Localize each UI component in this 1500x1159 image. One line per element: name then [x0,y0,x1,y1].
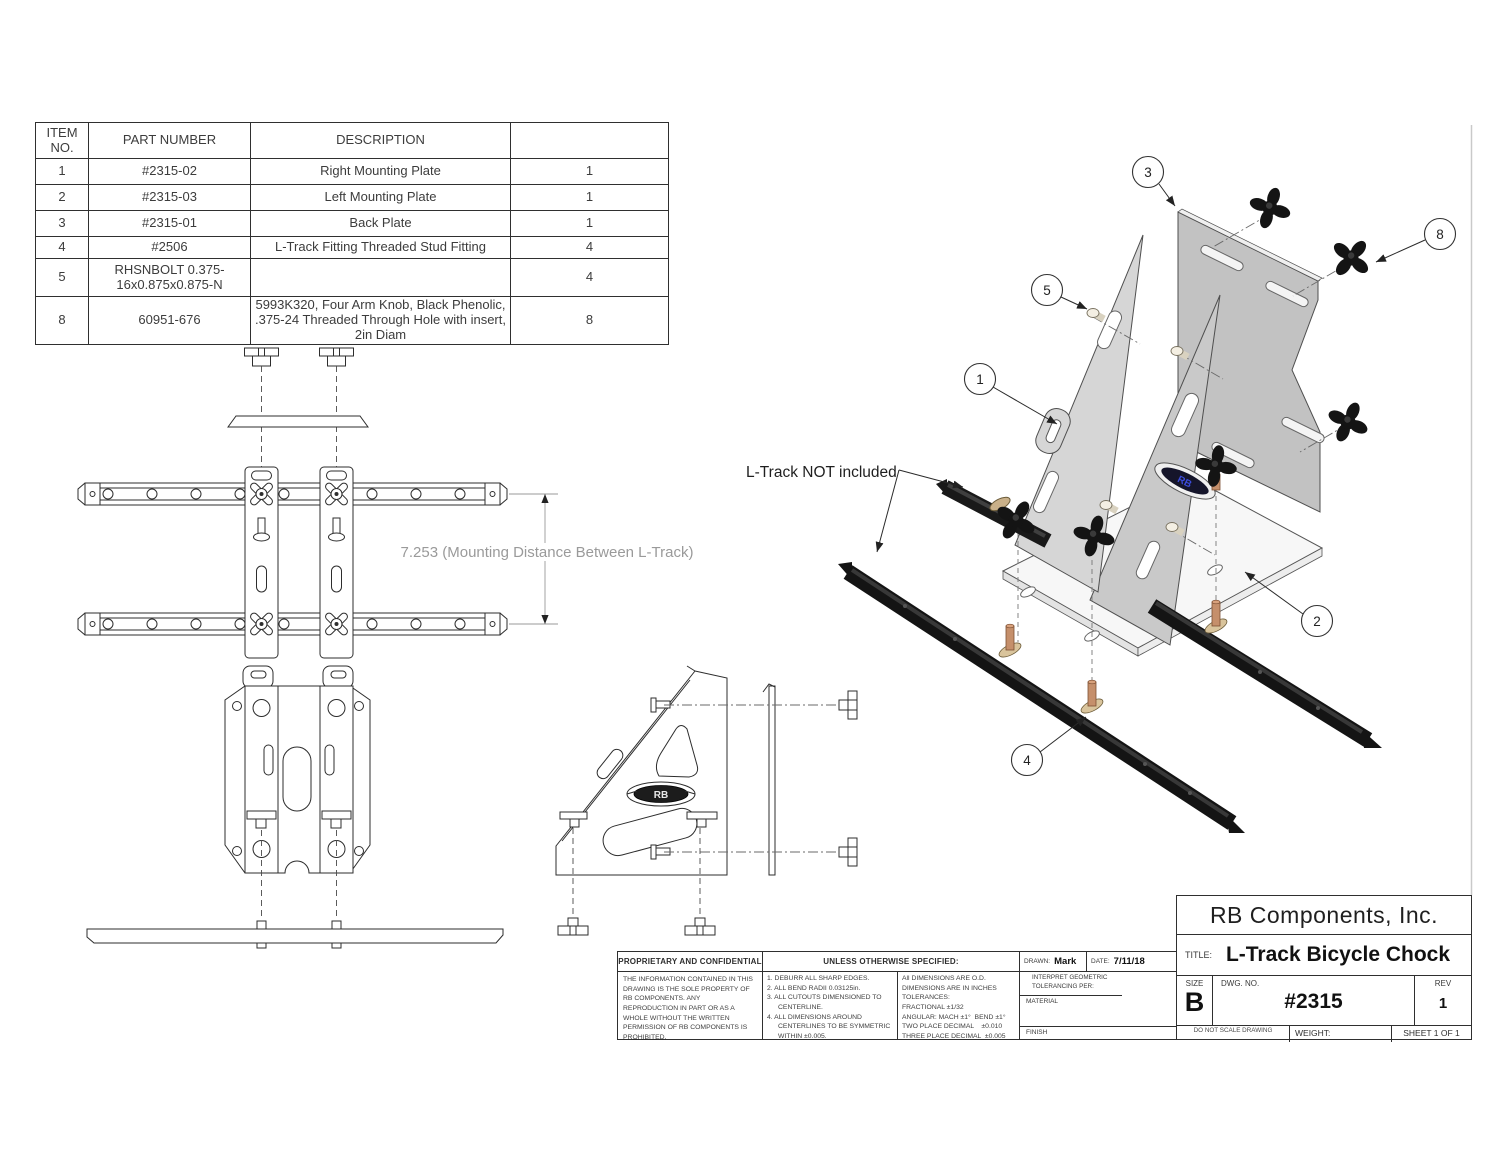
table-header-row: ITEM NO. PART NUMBER DESCRIPTION [36,123,669,159]
ltrack-right [1152,600,1382,748]
tolerance-line: THREE PLACE DECIMAL ±0.005 [902,1032,1015,1042]
unless-title: UNLESS OTHERWISE SPECIFIED: [763,952,1019,972]
cell-desc [251,259,511,297]
drawing-title: L-Track Bicycle Chock [1177,935,1471,975]
cell-part: #2315-02 [89,159,251,185]
finish-label: FINISH [1020,1027,1176,1046]
four-arm-knob [1320,394,1376,450]
rb-logo: RB [627,782,695,806]
cell-desc: Right Mounting Plate [251,159,511,185]
drawn-block: DRAWN: Mark DATE: 7/11/18 INTERPRET GEOM… [1019,951,1177,1040]
col-header-desc: DESCRIPTION [251,123,511,159]
cell-item: 2 [36,185,89,211]
proprietary-title: PROPRIETARY AND CONFIDENTIAL [618,952,762,972]
cell-item: 3 [36,211,89,237]
back-plate-side-edge [769,686,775,875]
size-value: B [1177,989,1212,1016]
date-cell: DATE: 7/11/18 [1087,952,1176,971]
cell-item: 5 [36,259,89,297]
size-cell: SIZE B [1177,976,1213,1025]
do-not-scale: DO NOT SCALE DRAWING [1177,1026,1290,1042]
cell-part: 60951-676 [89,297,251,345]
ltrack-note: L-Track NOT included [746,464,963,552]
table-row: 8 60951-676 5993K320, Four Arm Knob, Bla… [36,297,669,345]
balloon-3: 3 [1133,157,1176,207]
svg-text:8: 8 [1436,227,1444,242]
parts-table: ITEM NO. PART NUMBER DESCRIPTION 1 #2315… [35,122,669,345]
proprietary-body: THE INFORMATION CONTAINED IN THIS DRAWIN… [618,972,762,1045]
svg-text:4: 4 [1023,753,1031,768]
company-name: RB Components, Inc. [1177,896,1471,935]
table-row: 5 RHSNBOLT 0.375-16x0.875x0.875-N 4 [36,259,669,297]
balloon-5: 5 [1032,275,1088,310]
cell-part: #2315-03 [89,185,251,211]
cell-desc: Left Mounting Plate [251,185,511,211]
top-view: 7.253 (Mounting Distance Between L-Track… [78,348,698,658]
cell-desc: Back Plate [251,211,511,237]
back-plate-edge [228,416,368,427]
tolerance-line: All DIMENSIONS ARE O.D. [902,974,1015,984]
ltrack-top [78,483,507,505]
rev-cell: REV 1 [1415,976,1471,1025]
cell-part: RHSNBOLT 0.375-16x0.875x0.875-N [89,259,251,297]
tolerance-line: DIMENSIONS ARE IN INCHES [902,984,1015,994]
dwg-cell: DWG. NO. #2315 [1213,976,1415,1025]
dwg-label: DWG. NO. [1213,976,1414,988]
knob-bottom [558,918,715,935]
cell-qty: 8 [511,297,669,345]
table-row: 3 #2315-01 Back Plate 1 [36,211,669,237]
date-label: DATE: [1091,958,1110,965]
svg-text:5: 5 [1043,283,1051,298]
drawing-sheet: 7.253 (Mounting Distance Between L-Track… [0,0,1500,1159]
cell-part: #2315-01 [89,211,251,237]
material-label: MATERIAL [1020,996,1176,1027]
table-row: 2 #2315-03 Left Mounting Plate 1 [36,185,669,211]
ltrack-bottom [78,613,507,635]
title-label: TITLE: [1185,950,1212,960]
bolt-pin [1087,309,1104,320]
cell-item: 8 [36,297,89,345]
cell-part: #2506 [89,237,251,259]
knob-side [839,691,857,866]
drawn-cell: DRAWN: Mark [1020,952,1087,971]
four-arm-knob [1321,228,1380,287]
unless-otherwise-block: UNLESS OTHERWISE SPECIFIED: 1. DEBURR AL… [762,951,1020,1040]
svg-text:3: 3 [1144,165,1152,180]
cell-qty: 4 [511,259,669,297]
four-arm-knob [1244,182,1297,235]
cell-qty: 1 [511,159,669,185]
dimension-annotation: 7.253 (Mounting Distance Between L-Track… [396,494,698,624]
balloon-1: 1 [965,364,1058,425]
balloon-2: 2 [1245,572,1333,637]
proprietary-block: PROPRIETARY AND CONFIDENTIAL THE INFORMA… [617,951,763,1040]
svg-text:2: 2 [1313,614,1321,629]
base-strip [87,929,503,943]
sheet-label: SHEET 1 OF 1 [1392,1026,1471,1042]
front-view [87,666,503,948]
fitting-bracket [245,467,278,658]
uos-notes: 1. DEBURR ALL SHARP EDGES. 2. ALL BEND R… [763,972,898,1040]
cell-qty: 4 [511,237,669,259]
ltrack-note-text: L-Track NOT included [746,464,897,481]
dimension-text: 7.253 (Mounting Distance Between L-Track… [401,544,694,561]
cell-item: 4 [36,237,89,259]
cell-item: 1 [36,159,89,185]
side-view: RB [556,666,857,935]
uos-note: 3. ALL CUTOUTS DIMENSIONED TO CENTERLINE… [767,993,893,1012]
drawn-value: Mark [1054,956,1076,967]
uos-note: 2. ALL BEND RADII 0.03125in. [767,984,893,994]
dwg-value: #2315 [1213,990,1414,1014]
isometric-view: RB [746,157,1456,834]
cell-qty: 1 [511,211,669,237]
title-block: RB Components, Inc. TITLE: L-Track Bicyc… [1176,895,1472,1040]
tolerance-notes: All DIMENSIONS ARE O.D. DIMENSIONS ARE I… [898,972,1019,1040]
tolerance-line: ANGULAR: MACH ±1° BEND ±1° [902,1013,1015,1023]
cell-desc: L-Track Fitting Threaded Stud Fitting [251,237,511,259]
cell-qty: 1 [511,185,669,211]
tolerance-line: TWO PLACE DECIMAL ±0.010 [902,1022,1015,1032]
col-header-qty [511,123,669,159]
col-header-part: PART NUMBER [89,123,251,159]
drawn-label: DRAWN: [1024,958,1050,965]
rev-value: 1 [1415,995,1471,1012]
fitting-bracket [320,467,353,658]
rev-label: REV [1415,976,1471,988]
uos-note: 1. DEBURR ALL SHARP EDGES. [767,974,893,984]
interpret-label: INTERPRET GEOMETRIC TOLERANCING PER: [1020,972,1122,996]
table-row: 1 #2315-02 Right Mounting Plate 1 [36,159,669,185]
svg-text:1: 1 [976,372,984,387]
table-row: 4 #2506 L-Track Fitting Threaded Stud Fi… [36,237,669,259]
tolerance-line: FRACTIONAL ±1/32 [902,1003,1015,1013]
tolerance-line: TOLERANCES: [902,993,1015,1003]
cell-desc: 5993K320, Four Arm Knob, Black Phenolic,… [251,297,511,345]
date-value: 7/11/18 [1114,956,1145,967]
balloon-4: 4 [1012,717,1087,776]
weight-label: WEIGHT: [1290,1026,1392,1042]
col-header-item: ITEM NO. [36,123,89,159]
knob-silhouette [245,348,354,366]
balloon-8: 8 [1376,219,1456,263]
uos-note: 4. ALL DIMENSIONS AROUND CENTERLINES TO … [767,1013,893,1042]
svg-text:RB: RB [654,790,668,801]
